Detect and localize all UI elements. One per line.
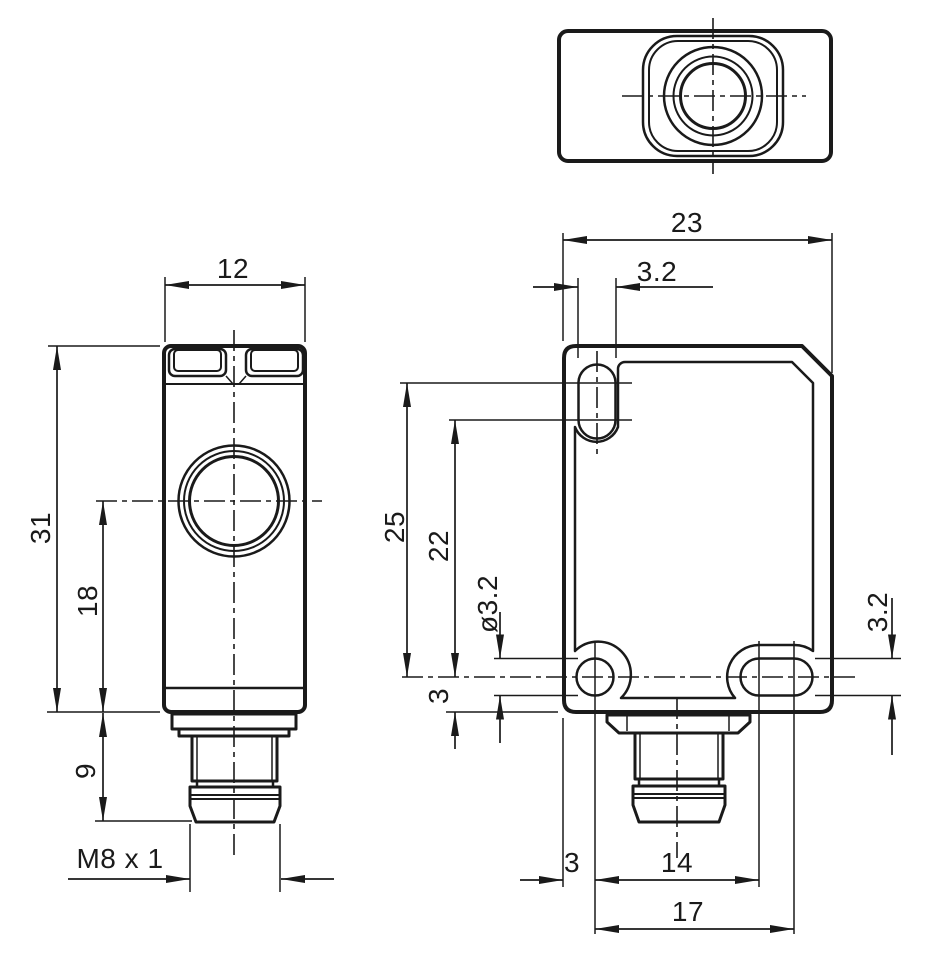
- dim-14: 14: [595, 847, 759, 880]
- dim-label-25: 25: [379, 511, 410, 543]
- side-view-slot-join-right: [239, 376, 246, 384]
- dim-label-axis-18: 18: [72, 585, 103, 617]
- dim-25: 25: [379, 383, 410, 677]
- front-view-face-inner-outline: [575, 362, 813, 698]
- dim-axis-18: 18: [72, 501, 103, 712]
- front-view-dimensions: 23 3.2 25 22 ø3.2 3 3.2: [379, 207, 893, 929]
- dim-label-axis-to-bottom-3: 3: [423, 688, 454, 704]
- dim-width-12: 12: [165, 253, 305, 342]
- technical-drawing-page: 12 31 18 9 M8 x 1: [0, 0, 933, 957]
- dim-label-connector-9: 9: [70, 763, 101, 779]
- dim-label-17: 17: [672, 896, 704, 927]
- side-view: [96, 330, 322, 858]
- front-view-connector: [607, 715, 750, 822]
- dim-label-height-31: 31: [25, 512, 56, 544]
- dim-label-slot-width: 3.2: [637, 256, 677, 287]
- top-view: [559, 18, 831, 174]
- connector-thread-barrel: [635, 733, 723, 779]
- dim-label-22: 22: [423, 530, 454, 562]
- dim-label-width-23: 23: [671, 207, 703, 238]
- dim-label-hole-diameter: ø3.2: [472, 575, 503, 633]
- dim-side-slot-3-2: 3.2: [862, 592, 893, 755]
- side-view-slot-left-inner: [174, 350, 221, 371]
- dim-slot-width-3-2: 3.2: [533, 256, 713, 287]
- connector-tip: [633, 786, 725, 822]
- dim-22: 22: [423, 420, 455, 677]
- dim-label-14: 14: [661, 847, 693, 878]
- dim-label-width-12: 12: [217, 253, 249, 284]
- dim-width-23: 23: [563, 207, 832, 240]
- dim-17: 17: [595, 896, 794, 929]
- dim-label-thread: M8 x 1: [76, 843, 163, 874]
- dim-label-side-slot-3-2: 3.2: [862, 592, 893, 632]
- connector-tip: [190, 787, 280, 822]
- technical-drawing-canvas: 12 31 18 9 M8 x 1: [0, 0, 933, 957]
- dim-label-edge-to-hole-3: 3: [564, 847, 580, 878]
- dim-thread-m8x1: M8 x 1: [68, 824, 334, 892]
- dim-edge-to-hole-3: 3: [520, 847, 580, 880]
- dim-axis-to-bottom-3: 3: [423, 688, 455, 749]
- side-view-slot-right-inner: [251, 350, 298, 371]
- side-view-slot-join-left: [226, 376, 233, 384]
- dim-height-31: 31: [25, 346, 160, 712]
- front-view-body-outline: [564, 346, 832, 712]
